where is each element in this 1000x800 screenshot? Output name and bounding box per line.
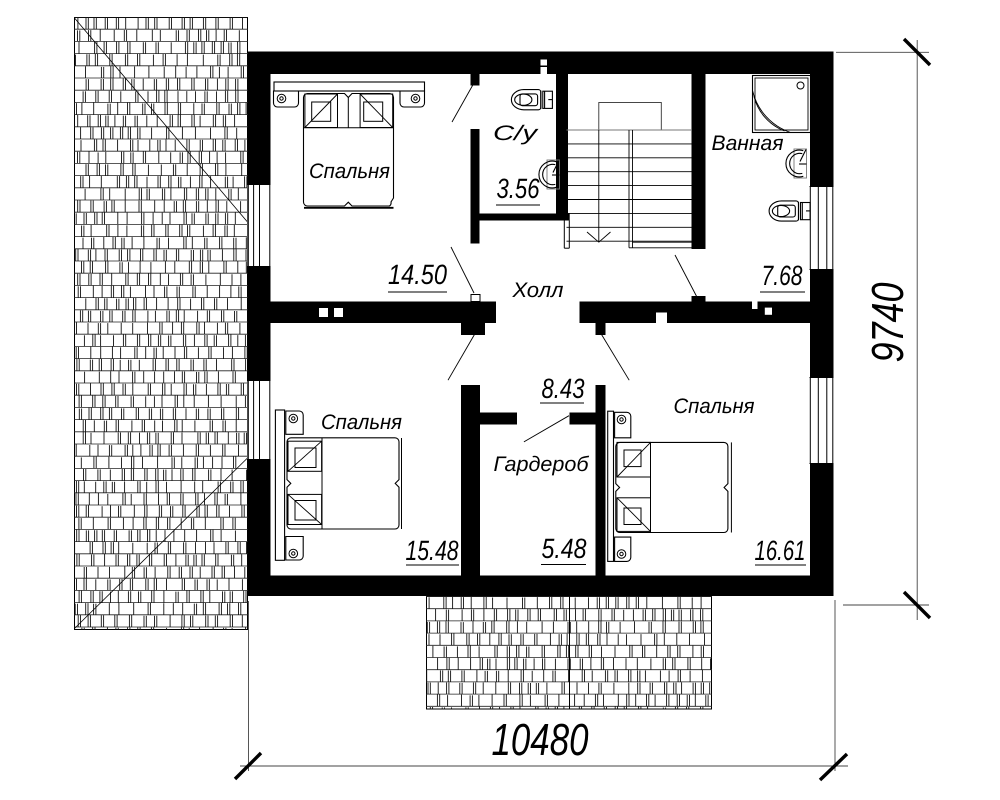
svg-text:8.43: 8.43 xyxy=(542,373,585,404)
svg-text:14.50: 14.50 xyxy=(388,259,447,290)
svg-text:Спальня: Спальня xyxy=(674,395,755,418)
svg-text:Гардероб: Гардероб xyxy=(494,453,590,476)
svg-text:3.56: 3.56 xyxy=(497,173,540,204)
svg-text:Холл: Холл xyxy=(511,279,563,302)
svg-text:Спальня: Спальня xyxy=(309,160,390,183)
svg-text:16.61: 16.61 xyxy=(755,535,806,566)
svg-text:Спальня: Спальня xyxy=(321,411,402,434)
svg-text:5.48: 5.48 xyxy=(542,533,587,564)
svg-text:15.48: 15.48 xyxy=(406,535,459,566)
svg-text:Ванная: Ванная xyxy=(712,132,784,155)
svg-text:9740: 9740 xyxy=(862,283,913,363)
svg-text:10480: 10480 xyxy=(492,714,589,765)
svg-text:С/у: С/у xyxy=(493,122,539,145)
svg-text:7.68: 7.68 xyxy=(762,260,803,291)
